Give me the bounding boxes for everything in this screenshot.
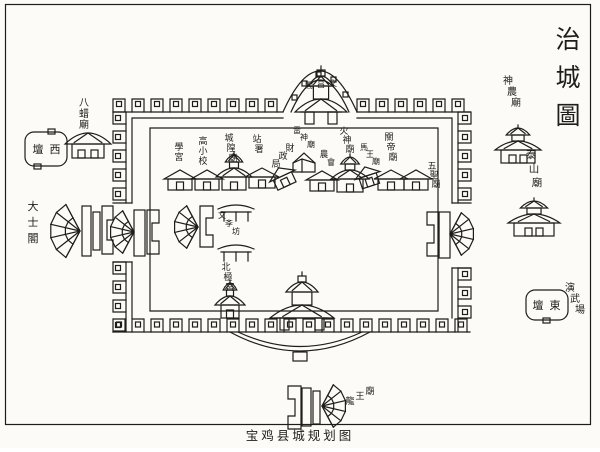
building-bazha-temple: [65, 133, 111, 158]
west-altar-enclosure: [25, 129, 67, 169]
label-bazha-temple: 八蜡廟: [79, 98, 89, 131]
memorial-archway-bottom: [218, 245, 254, 261]
map-title: 治城圖: [555, 25, 580, 130]
building-granary: [293, 153, 315, 172]
east-gate-tower: [427, 212, 473, 258]
label-caizheng-ju: 財政局: [271, 142, 294, 170]
label-huoshen-temple: 火神廟: [339, 126, 354, 155]
label-shennong-temple: 神農廟: [503, 74, 521, 109]
label-nong-hui: 農會: [320, 149, 336, 168]
building-gaoxiao-school: [191, 170, 223, 190]
label-xuegong: 學宮: [174, 141, 183, 163]
west-gate-tower: [111, 210, 159, 256]
city-plan-map: 治城圖 宝鸡县城规划图 八蜡廟 壇西 大士閣 神農廟 泰山廟 壇東 演武場 龍王…: [0, 0, 600, 448]
label-longwang-temple: 龍王廟: [345, 385, 374, 407]
scanned-map-page: 治城圖 宝鸡县城规划图 八蜡廟 壇西 大士閣 神農廟 泰山廟 壇東 演武場 龍王…: [0, 0, 600, 448]
label-leishen-temple: 雷神廟: [293, 126, 315, 149]
building-zhan-shu: [245, 168, 279, 188]
building-taishan: [508, 198, 560, 236]
label-north-gate-tower: 閣昌文: [305, 78, 337, 90]
memorial-archway-west: [175, 206, 213, 248]
building-wusheng: [400, 170, 432, 190]
building-dashi-pavilion: [51, 205, 113, 258]
label-taishan-temple: 泰山廟: [526, 148, 543, 189]
building-nong-hui: [306, 171, 338, 191]
label-west-altar: 壇西: [33, 142, 61, 156]
label-wenxue-fang: 文斈坊: [218, 210, 240, 236]
label-guandi-temple: 關帝廟: [384, 132, 397, 163]
label-mawang-temple: 馬王廟: [360, 143, 380, 166]
building-huoshen: [331, 154, 369, 192]
building-xuegong: [164, 170, 196, 190]
label-gaoxiao-school: 高小校: [198, 135, 207, 167]
label-east-altar: 壇東: [533, 298, 561, 312]
building-longwang: [288, 385, 345, 429]
label-zhan-shu: 站署: [252, 133, 263, 155]
south-gate-tower: [270, 272, 334, 330]
label-dashi-pavilion: 大士閣: [28, 199, 39, 245]
map-caption: 宝鸡县城规划图: [246, 428, 355, 443]
